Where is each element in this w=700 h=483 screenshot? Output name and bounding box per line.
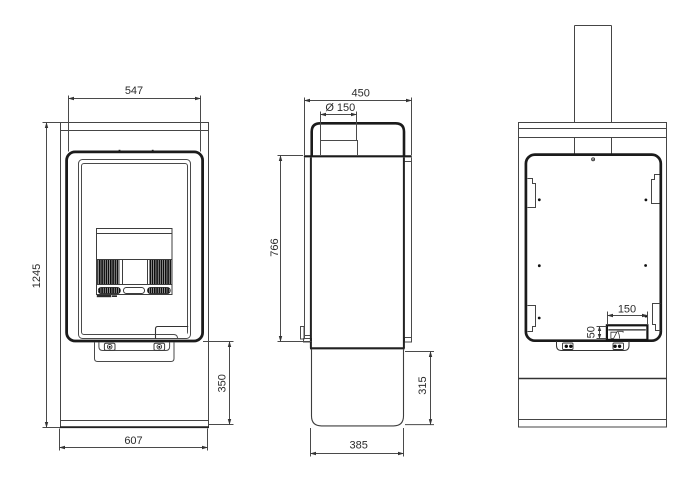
svg-text:50: 50 xyxy=(586,326,598,338)
svg-text:450: 450 xyxy=(352,88,370,100)
svg-text:350: 350 xyxy=(216,374,228,392)
svg-text:150: 150 xyxy=(618,303,636,315)
svg-text:766: 766 xyxy=(269,238,281,256)
svg-text:1245: 1245 xyxy=(31,264,43,288)
svg-text:385: 385 xyxy=(350,439,368,451)
svg-text:547: 547 xyxy=(125,85,143,97)
svg-text:315: 315 xyxy=(417,376,429,394)
svg-text:Ø 150: Ø 150 xyxy=(325,102,355,114)
svg-text:607: 607 xyxy=(124,435,142,447)
